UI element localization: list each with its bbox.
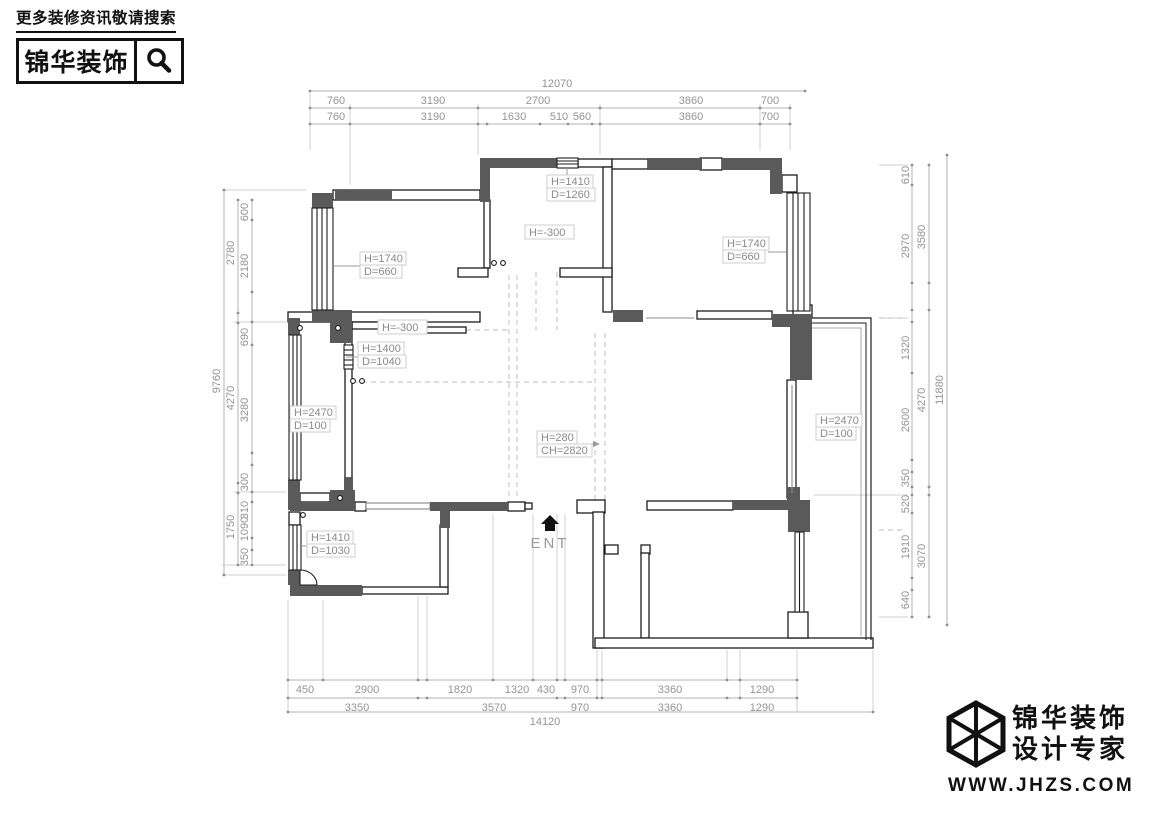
svg-text:3350: 3350 — [345, 702, 369, 714]
room-annotation: H=1410 D=1030 — [307, 531, 355, 557]
svg-text:H=-300: H=-300 — [382, 322, 418, 334]
svg-text:3190: 3190 — [421, 111, 445, 123]
floor-plan: 12070 760 3190 2700 3860 700 760 3190 16… — [0, 0, 1158, 818]
svg-text:9760: 9760 — [211, 369, 223, 393]
footer-website: WWW.JHZS.COM — [948, 775, 1146, 797]
svg-text:2600: 2600 — [900, 408, 912, 432]
room-annotation: H=2470 D=100 — [290, 406, 336, 432]
svg-text:2780: 2780 — [225, 241, 237, 265]
svg-text:1320: 1320 — [900, 336, 912, 360]
svg-text:700: 700 — [761, 111, 779, 123]
svg-text:2970: 2970 — [900, 234, 912, 258]
svg-text:4270: 4270 — [916, 388, 928, 412]
svg-text:14120: 14120 — [530, 716, 561, 728]
svg-text:D=100: D=100 — [820, 428, 853, 440]
svg-text:H=1410: H=1410 — [311, 532, 350, 544]
svg-text:350: 350 — [900, 469, 912, 487]
svg-text:3580: 3580 — [916, 225, 928, 249]
room-annotations: H=1410 D=1260 H=-300 H=1740 D=660 H=1740… — [290, 175, 862, 557]
room-annotation: H=1740 D=660 — [723, 237, 769, 263]
svg-text:H=1410: H=1410 — [551, 176, 590, 188]
svg-text:640: 640 — [900, 591, 912, 609]
svg-text:350: 350 — [239, 548, 251, 566]
room-annotation: H=-300 — [525, 225, 574, 239]
svg-text:560: 560 — [573, 111, 591, 123]
svg-text:H=2470: H=2470 — [820, 415, 859, 427]
svg-text:600: 600 — [239, 203, 251, 221]
svg-text:D=1030: D=1030 — [311, 545, 350, 557]
svg-text:D=100: D=100 — [294, 420, 327, 432]
room-annotation: H=2470 D=100 — [816, 414, 862, 440]
page: 更多装修资讯敬请搜索 锦华装饰 12070 760 3190 2700 3860… — [0, 0, 1158, 818]
svg-text:3860: 3860 — [679, 111, 703, 123]
svg-text:D=660: D=660 — [727, 251, 760, 263]
svg-text:1290: 1290 — [750, 702, 774, 714]
svg-text:450: 450 — [296, 684, 314, 696]
svg-text:1320: 1320 — [505, 684, 529, 696]
svg-text:700: 700 — [761, 95, 779, 107]
svg-text:610: 610 — [900, 166, 912, 184]
window-bottom-right — [795, 532, 804, 612]
svg-text:11880: 11880 — [934, 375, 946, 405]
balcony-railing — [812, 318, 871, 640]
svg-text:1290: 1290 — [750, 684, 774, 696]
footer-brand-line1: 锦华装饰 — [1012, 703, 1128, 734]
svg-text:2700: 2700 — [526, 95, 550, 107]
svg-text:520: 520 — [900, 495, 912, 513]
svg-text:H=-300: H=-300 — [529, 227, 565, 239]
svg-text:D=1040: D=1040 — [362, 356, 401, 368]
svg-text:970: 970 — [571, 702, 589, 714]
svg-text:3860: 3860 — [679, 95, 703, 107]
svg-text:3280: 3280 — [239, 398, 251, 422]
svg-text:3360: 3360 — [658, 702, 682, 714]
window-top-middle — [557, 158, 578, 168]
svg-text:H=1740: H=1740 — [364, 253, 403, 265]
svg-text:2900: 2900 — [355, 684, 379, 696]
svg-text:1630: 1630 — [502, 111, 526, 123]
window-bottom-left — [289, 525, 301, 570]
svg-text:1910: 1910 — [900, 535, 912, 559]
svg-text:4270: 4270 — [225, 386, 237, 410]
svg-text:760: 760 — [327, 95, 345, 107]
svg-text:760: 760 — [327, 111, 345, 123]
svg-text:2180: 2180 — [239, 254, 251, 278]
svg-text:H=280: H=280 — [541, 432, 574, 444]
cube-logo-icon — [946, 700, 1006, 768]
svg-text:3360: 3360 — [658, 684, 682, 696]
svg-text:H=2470: H=2470 — [294, 407, 333, 419]
entrance-marker: ENT — [531, 515, 570, 552]
svg-text:1090: 1090 — [239, 517, 251, 541]
room-annotation: H=1410 D=1260 — [547, 175, 595, 201]
footer: 锦华装饰 设计专家 WWW.JHZS.COM — [946, 700, 1146, 797]
walls-thin — [288, 158, 873, 648]
svg-text:H=1400: H=1400 — [362, 343, 401, 355]
room-annotation: H=280 CH=2820 — [537, 431, 592, 457]
svg-text:CH=2820: CH=2820 — [541, 445, 588, 457]
svg-text:D=1260: D=1260 — [551, 189, 590, 201]
door-arc — [300, 570, 317, 585]
window-bedroom2-right — [787, 193, 810, 311]
room-annotation: H=1740 D=660 — [360, 252, 406, 278]
svg-text:310: 310 — [239, 501, 251, 519]
window-bedroom1-left — [312, 208, 333, 310]
svg-text:D=660: D=660 — [364, 266, 397, 278]
svg-text:690: 690 — [239, 328, 251, 346]
footer-brand: 锦华装饰 设计专家 — [1012, 703, 1128, 765]
entrance-label: ENT — [531, 535, 570, 552]
footer-brand-line2: 设计专家 — [1012, 734, 1128, 765]
svg-text:H=1740: H=1740 — [727, 238, 766, 250]
svg-text:3070: 3070 — [916, 544, 928, 568]
entrance-arrow-icon — [541, 515, 559, 531]
svg-text:300: 300 — [239, 473, 251, 491]
svg-text:12070: 12070 — [542, 78, 573, 90]
svg-text:3570: 3570 — [482, 702, 506, 714]
svg-text:3190: 3190 — [421, 95, 445, 107]
svg-text:510: 510 — [550, 111, 568, 123]
svg-text:1750: 1750 — [225, 515, 237, 539]
svg-text:970: 970 — [571, 684, 589, 696]
svg-text:1820: 1820 — [448, 684, 472, 696]
room-annotation: H=1400 D=1040 — [358, 342, 406, 368]
room-annotation: H=-300 — [378, 320, 427, 334]
svg-text:430: 430 — [537, 684, 555, 696]
